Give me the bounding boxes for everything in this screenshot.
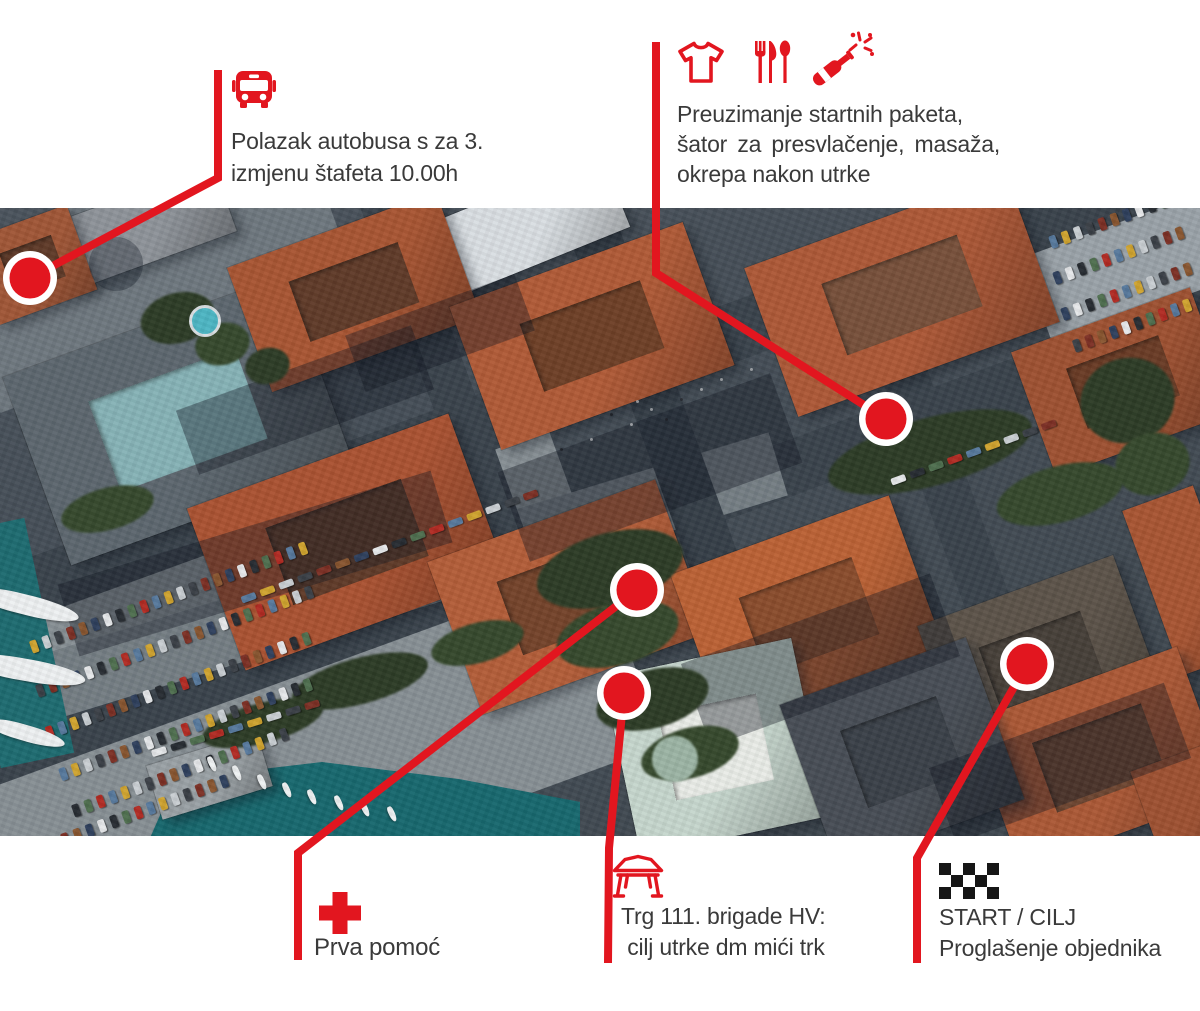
champagne-bottle-icon — [808, 28, 874, 86]
square-caption-line1: Trg 111. brigade HV: — [621, 901, 825, 932]
bus-caption-line2: izmjenu štafeta 10.00h — [231, 157, 483, 189]
packets-caption-line3: okrepa nakon utrke — [677, 159, 1000, 189]
tent-icon — [611, 854, 665, 902]
start-finish-caption-line2: Proglašenje objednika — [939, 933, 1161, 964]
square-finish-caption: Trg 111. brigade HV: cilj utrke dm mići … — [621, 901, 825, 963]
start-finish-caption: START / CILJ Proglašenje objednika — [939, 902, 1161, 964]
bus-icon — [232, 69, 276, 111]
start-packets-marker[interactable] — [859, 392, 913, 446]
aerial-map — [0, 208, 1200, 836]
first-aid-caption: Prva pomoć — [314, 933, 440, 963]
bus-caption: Polazak autobusa s za 3. izmjenu štafeta… — [231, 125, 483, 189]
tshirt-icon — [676, 40, 726, 84]
first-aid-caption-line1: Prva pomoć — [314, 933, 440, 963]
bus-departure-marker[interactable] — [3, 251, 57, 305]
packets-caption-line1: Preuzimanje startnih paketa, — [677, 99, 1000, 129]
race-infographic: Polazak autobusa s za 3. izmjenu štafeta… — [0, 0, 1200, 1011]
bus-caption-line1: Polazak autobusa s za 3. — [231, 125, 483, 157]
first-aid-marker[interactable] — [610, 563, 664, 617]
square-finish-marker[interactable] — [597, 666, 651, 720]
square-caption-line2: cilj utrke dm mići trk — [621, 932, 825, 963]
first-aid-cross-icon — [317, 890, 363, 936]
start-finish-caption-line1: START / CILJ — [939, 902, 1161, 933]
cutlery-icon — [753, 39, 793, 85]
checkered-flag-icon — [939, 863, 999, 899]
packets-caption-line2: šator za presvlačenje, masaža, — [677, 129, 1000, 159]
start-packets-caption: Preuzimanje startnih paketa, šator za pr… — [677, 99, 1000, 189]
start-finish-marker[interactable] — [1000, 637, 1054, 691]
